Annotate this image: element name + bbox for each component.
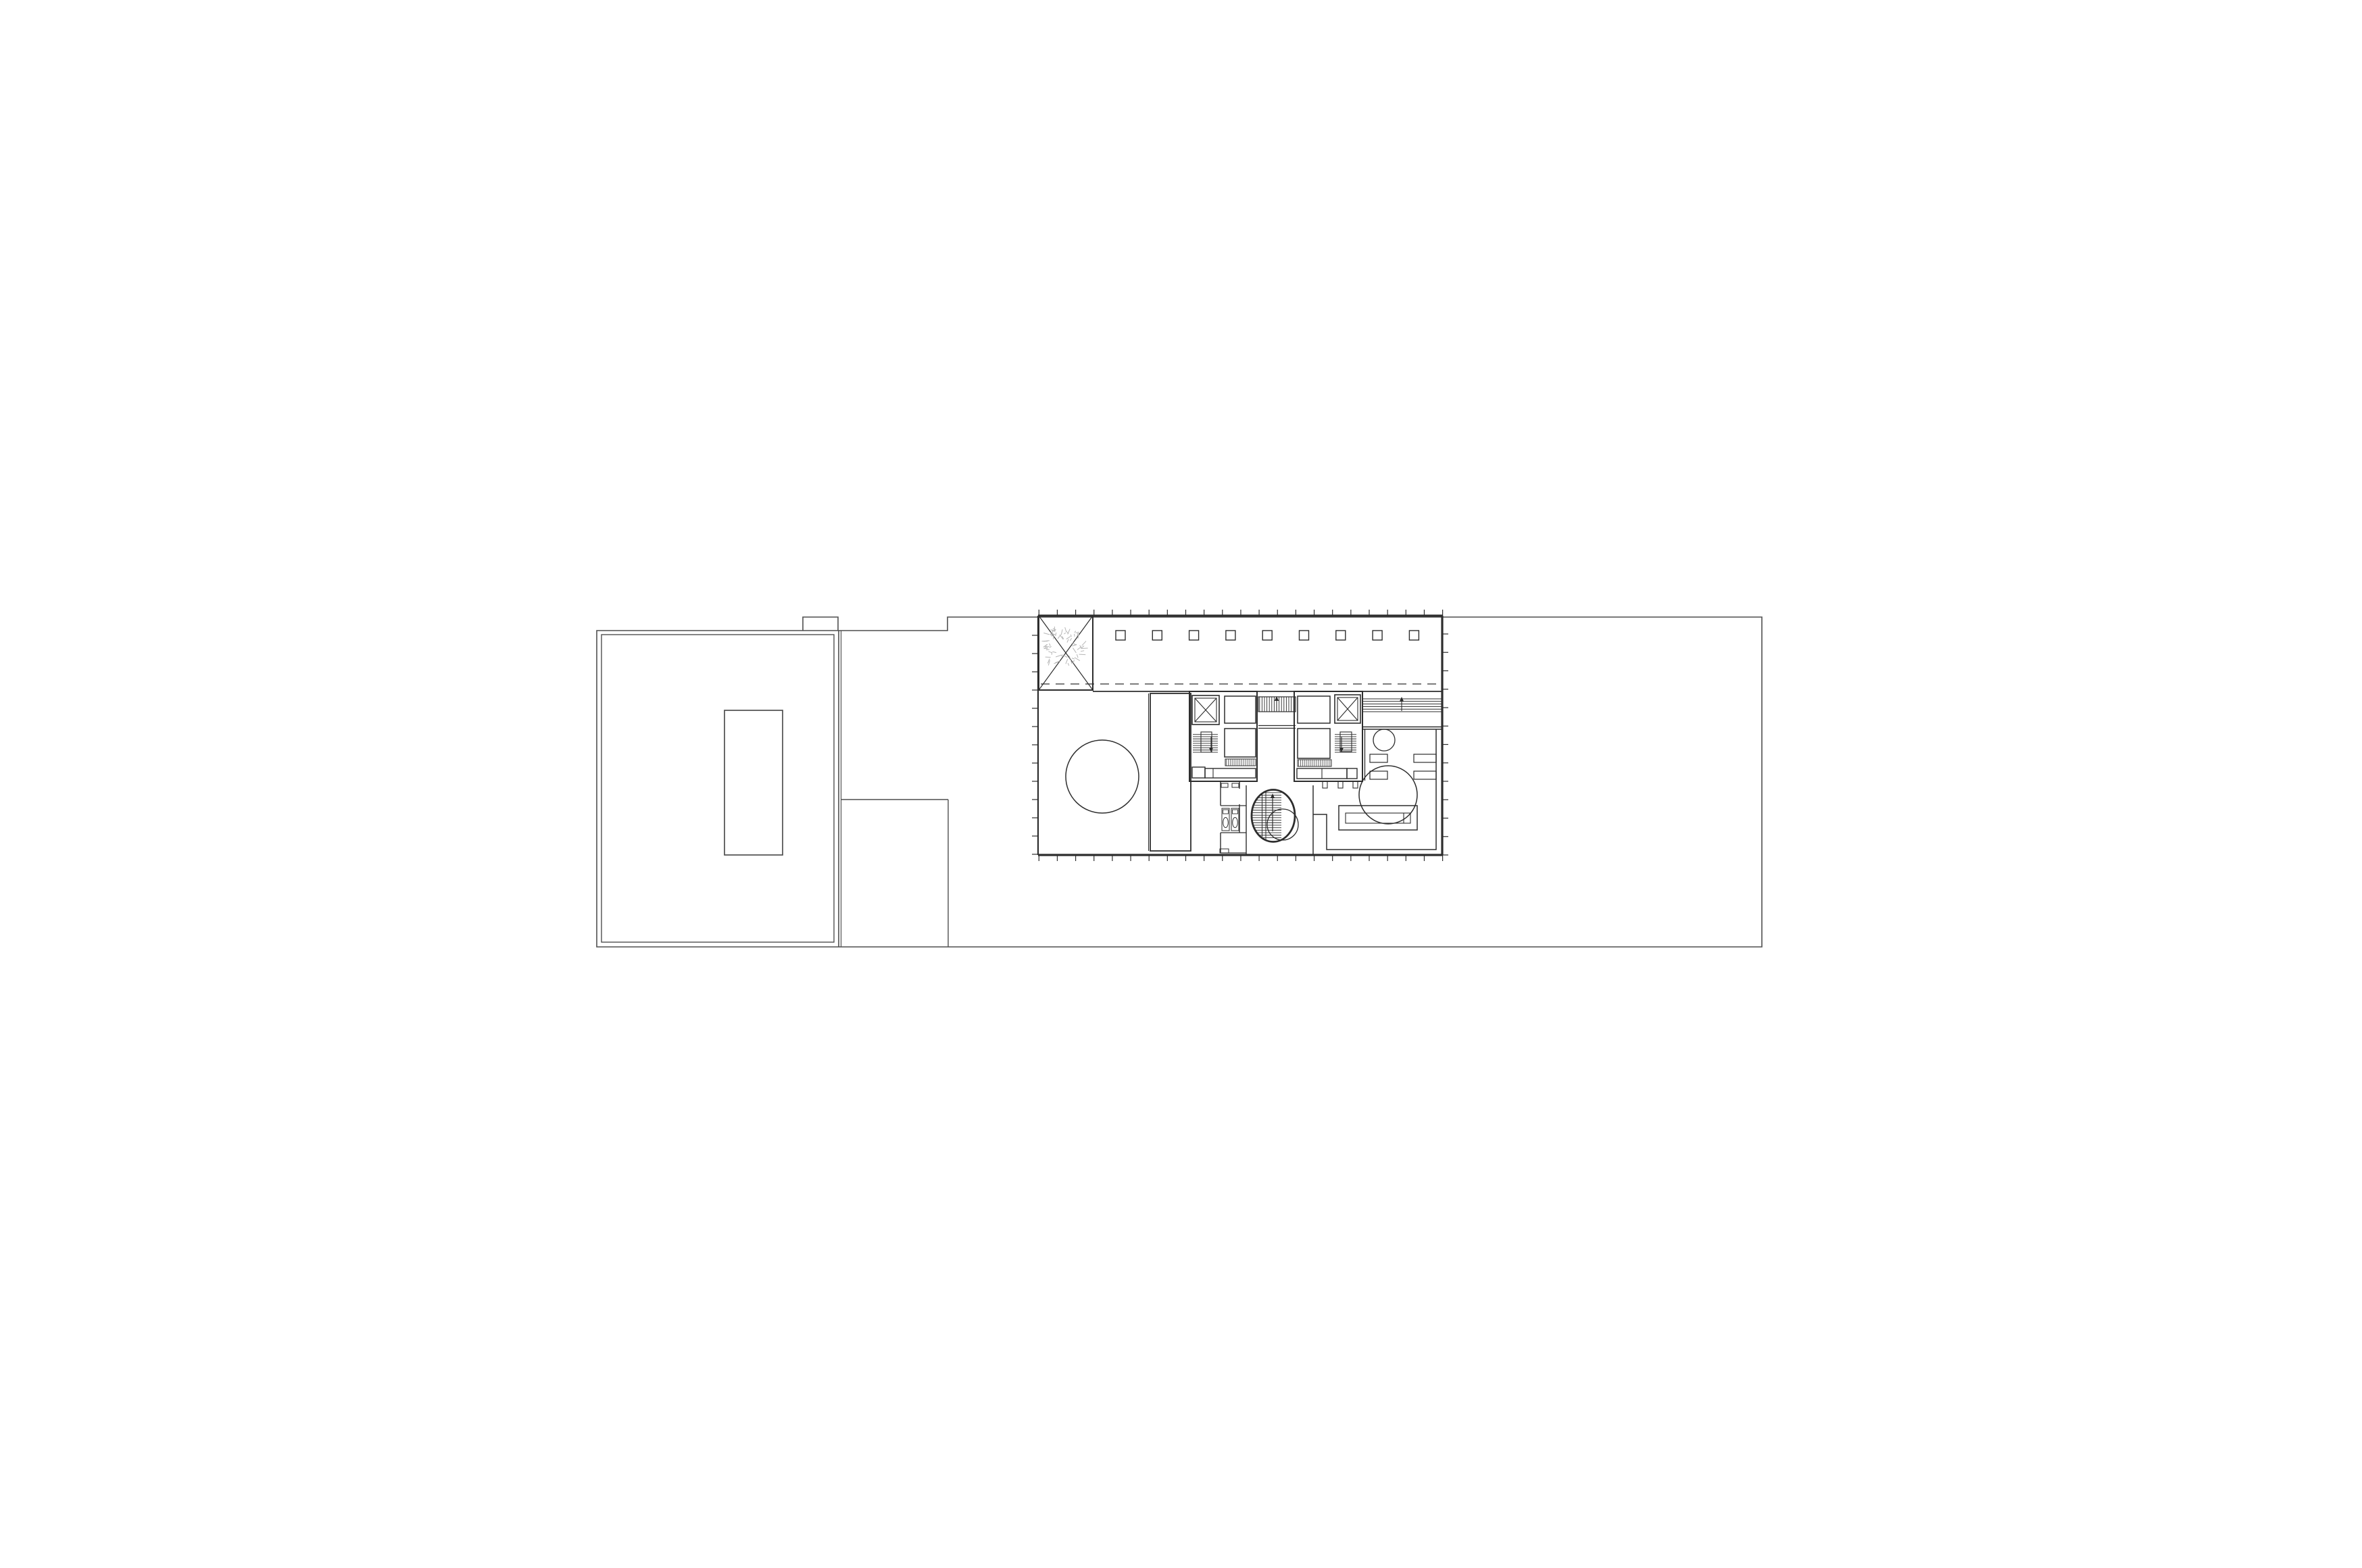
bench-4 <box>1414 771 1436 779</box>
core-left-group <box>1189 691 1257 781</box>
core-left-room-2 <box>1225 729 1256 757</box>
stair-right-treads <box>1335 735 1356 752</box>
core-right-slab-2 <box>1347 768 1357 779</box>
arcade-column <box>1336 631 1346 640</box>
bridge-group <box>1258 696 1296 729</box>
lounge-tree <box>1359 766 1417 824</box>
bench-1 <box>1370 754 1387 762</box>
wc-toilet-1 <box>1223 818 1229 828</box>
stair-left-treads <box>1193 735 1218 752</box>
drawing-canvas <box>0 0 2362 1568</box>
door-frame-3 <box>1220 849 1229 853</box>
arcade-column <box>1262 631 1272 640</box>
bridge-stair-arrow <box>1275 696 1279 711</box>
arcade-column <box>1373 631 1382 640</box>
building-inner-outline <box>601 635 834 942</box>
core-left-room-1 <box>1225 696 1256 723</box>
door-frame-2 <box>1232 783 1239 787</box>
arcade-column <box>1300 631 1309 640</box>
gallery-room <box>1150 693 1191 851</box>
core-right-room-2 <box>1298 729 1330 758</box>
core-right-louver-fins <box>1298 760 1329 766</box>
bench-2 <box>1414 754 1436 762</box>
lounge-plant <box>1373 729 1395 751</box>
wc-toilet-2 <box>1233 818 1238 828</box>
arcade-column <box>1189 631 1199 640</box>
wc-tank-2 <box>1233 810 1238 814</box>
core-right-room-1 <box>1298 696 1330 723</box>
site-group <box>597 617 1762 947</box>
bench-3 <box>1370 771 1387 779</box>
core-right-stub-3 <box>1353 781 1358 788</box>
floor-plan-svg <box>0 0 2362 1568</box>
arcade-column <box>1226 631 1235 640</box>
site-boundary <box>597 617 1762 947</box>
core-right-stub-1 <box>1323 781 1327 788</box>
arcade-column-row <box>1116 631 1419 640</box>
core-right-group <box>1294 691 1362 788</box>
arcade-column <box>1409 631 1419 640</box>
door-frame-1 <box>1221 783 1228 787</box>
wc-tank-1 <box>1223 810 1229 814</box>
grid-ticks-left <box>1032 635 1038 854</box>
core-left-slab-2 <box>1205 768 1256 778</box>
arcade-column <box>1152 631 1162 640</box>
site-top-notch <box>803 617 838 631</box>
corridor-group <box>1220 782 1246 855</box>
spiral-group <box>1250 790 1298 842</box>
hall-tree <box>1066 740 1139 813</box>
left-building-group <box>601 631 841 947</box>
core-left-slab-1 <box>1192 767 1205 778</box>
planter-group <box>1039 616 1093 690</box>
lounge-group <box>1313 729 1436 855</box>
core-right-stub-2 <box>1338 781 1343 788</box>
lounge-boundary <box>1313 729 1436 850</box>
ramp-group <box>1362 697 1442 729</box>
core-left-louver-fins <box>1226 759 1256 766</box>
courtyard-void <box>724 710 783 855</box>
arcade-column <box>1116 631 1125 640</box>
core-left-louver <box>1225 759 1256 766</box>
arcade-group <box>1041 631 1442 691</box>
hall-group <box>1066 693 1191 851</box>
